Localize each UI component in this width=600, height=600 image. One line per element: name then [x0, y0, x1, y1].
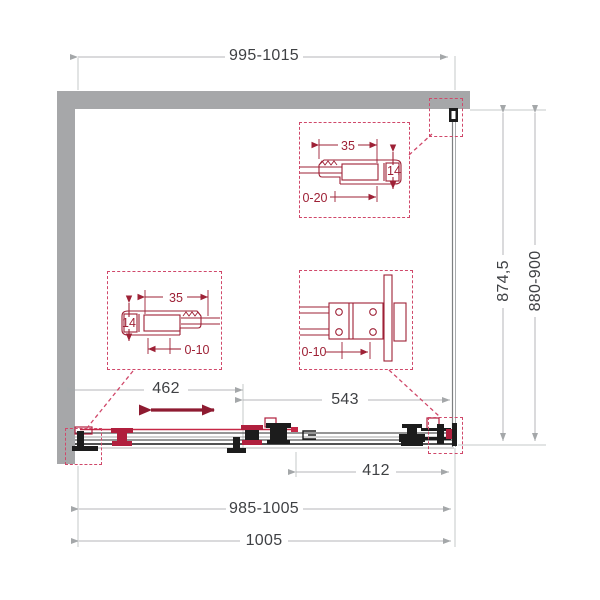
- detail-view-wall-profile-top: 35 14 0-20: [299, 122, 410, 218]
- glass-panel-lines: [300, 167, 342, 173]
- detail-top-adjust-label: 0-20: [302, 191, 327, 205]
- glass-door-panel: [384, 275, 392, 361]
- detail-view-roller-carriage: 0-10: [299, 270, 413, 370]
- track-clip: [303, 431, 316, 439]
- clamp-plate: [394, 303, 406, 341]
- roller-red-center: [241, 425, 263, 445]
- dim-side-height-range: 880-900: [527, 248, 545, 315]
- wall-profile-top-drawing: 35 14 0-20: [300, 123, 408, 216]
- detail-left-adjust-label: 0-10: [184, 343, 209, 357]
- detail-top-depth-label: 14: [387, 164, 401, 178]
- callout-box-track-right-end: [428, 417, 463, 454]
- callout-box-track-left-end: [65, 428, 102, 465]
- screw: [370, 309, 377, 316]
- dim-opening: 412: [359, 462, 393, 480]
- dim-top-width: 995-1015: [226, 47, 302, 65]
- roller-black-right: [399, 424, 425, 446]
- callout-box-wall-glass-junction: [429, 98, 463, 137]
- red-stop-tick: [291, 427, 298, 432]
- dim-door-travel: 462: [149, 380, 183, 398]
- carriage-body: [329, 303, 383, 339]
- detail-view-wall-profile-left: 35 14 0-10: [107, 271, 222, 370]
- detail-left-width-label: 35: [169, 291, 183, 305]
- technical-drawing-page: 35 14 0-20: [0, 0, 600, 600]
- fixed-glass-panel-right: [449, 108, 458, 447]
- dim-side-height-fixed: 874,5: [495, 257, 513, 305]
- dim-bottom-width-range: 985-1005: [226, 500, 302, 518]
- detail-top-width-label: 35: [341, 139, 355, 153]
- wall-profile-left-drawing: 35 14 0-10: [108, 272, 220, 368]
- dim-fixed-panel: 543: [328, 391, 362, 409]
- track-lines: [300, 307, 329, 335]
- detail-roller-adjust-label: 0-10: [301, 345, 326, 359]
- roller-carriage-drawing: 0-10: [300, 271, 411, 368]
- screw: [336, 309, 343, 316]
- screw: [370, 329, 377, 336]
- screw: [336, 329, 343, 336]
- detail-left-depth-label: 14: [122, 316, 136, 330]
- dim-bottom-width-total: 1005: [243, 532, 286, 550]
